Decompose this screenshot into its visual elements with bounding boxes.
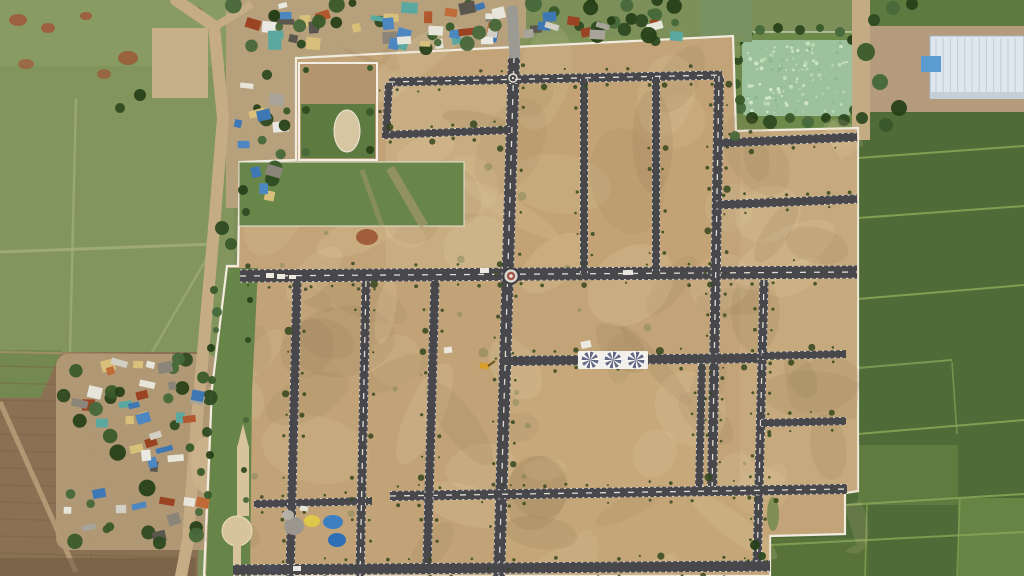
warehouse-compound [868,0,1024,112]
road-n-ns-a [580,79,587,274]
left-farm-fields [0,0,234,358]
road-n-ns-b [652,77,659,273]
aerial-photo [0,0,1024,576]
scene-svg [0,0,1024,576]
road-e-stub-1 [762,350,846,359]
road-e-stub-2 [761,417,846,426]
road-entrance [512,6,515,58]
